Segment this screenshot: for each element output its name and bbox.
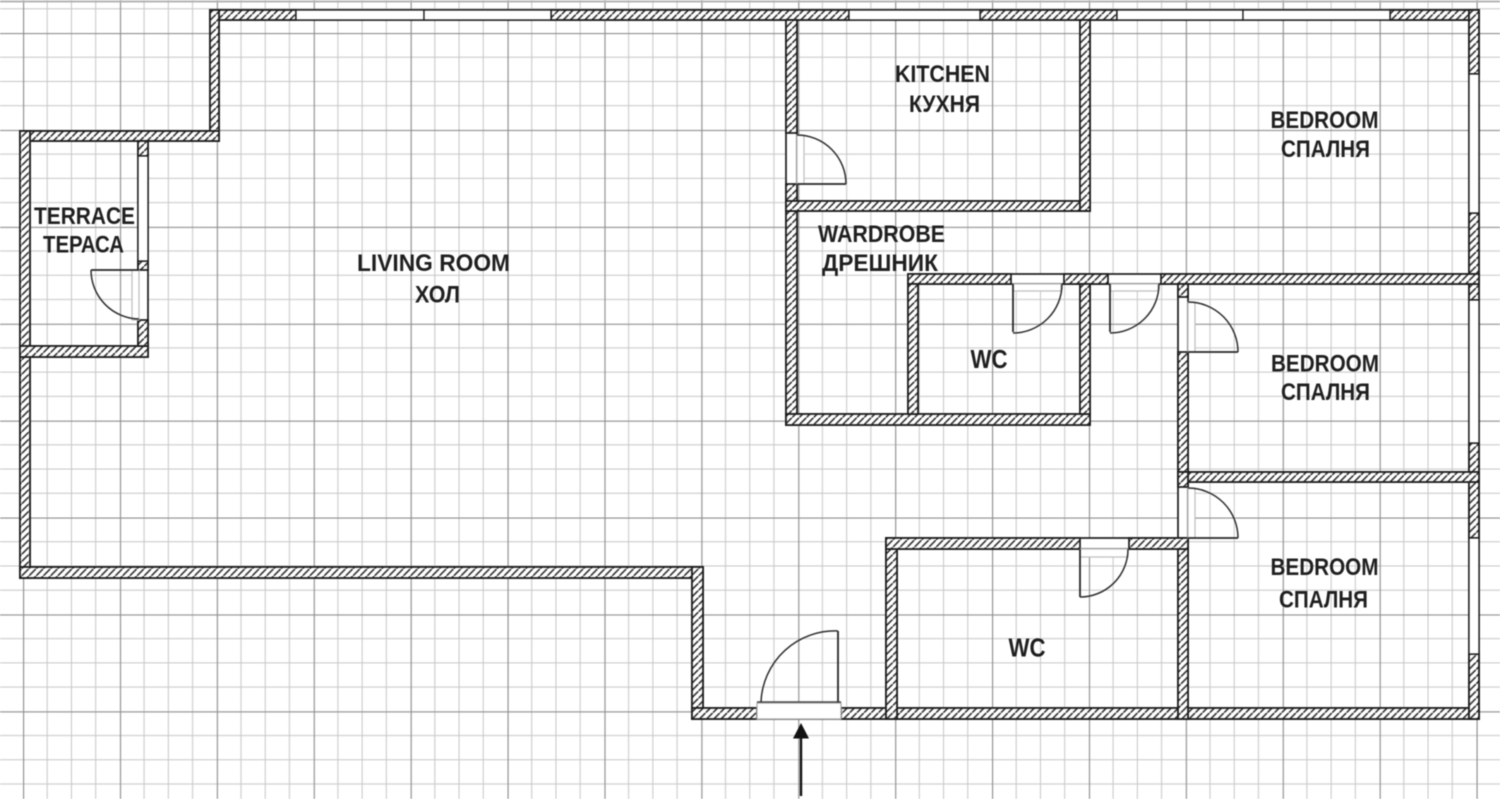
svg-text:ДРЕШНИК: ДРЕШНИК [822, 250, 938, 277]
svg-text:СПАЛНЯ: СПАЛНЯ [1281, 379, 1370, 406]
svg-text:WC: WC [971, 344, 1008, 374]
svg-text:LIVING ROOM: LIVING ROOM [357, 250, 510, 277]
svg-text:КУХНЯ: КУХНЯ [909, 91, 980, 118]
svg-text:BEDROOM: BEDROOM [1271, 107, 1379, 134]
svg-text:KITCHEN: KITCHEN [895, 61, 990, 88]
svg-text:WARDROBE: WARDROBE [818, 221, 945, 248]
svg-text:WC: WC [1009, 633, 1046, 663]
svg-text:ХОЛ: ХОЛ [415, 282, 460, 309]
svg-text:СПАЛНЯ: СПАЛНЯ [1281, 136, 1370, 163]
svg-text:TERRACE: TERRACE [34, 203, 135, 230]
svg-text:ТЕРАСА: ТЕРАСА [43, 232, 124, 259]
svg-text:BEDROOM: BEDROOM [1271, 554, 1379, 581]
svg-text:BEDROOM: BEDROOM [1271, 351, 1379, 378]
svg-text:СПАЛНЯ: СПАЛНЯ [1279, 587, 1368, 614]
